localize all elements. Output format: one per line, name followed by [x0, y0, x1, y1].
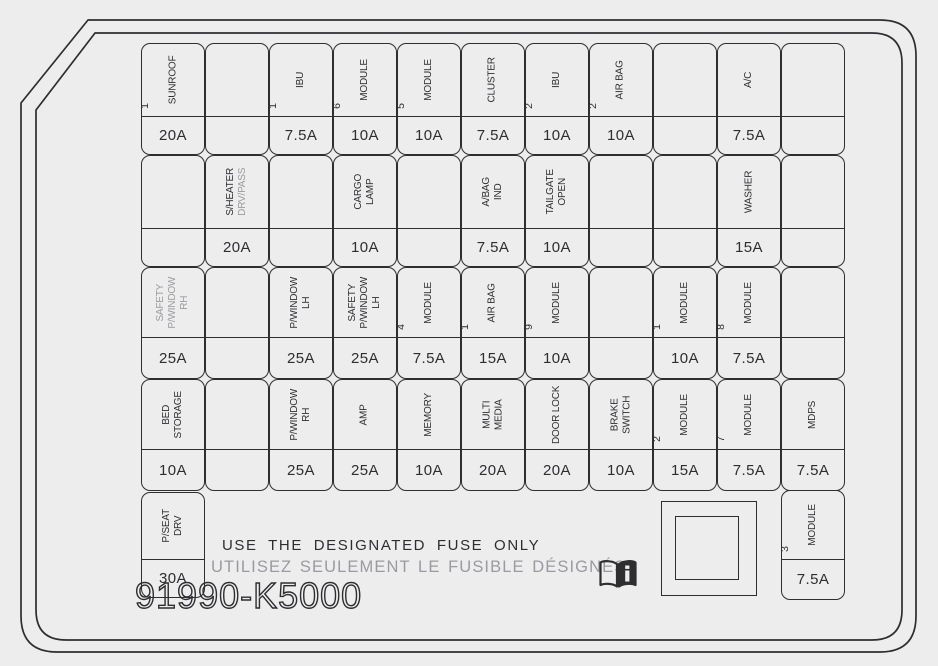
fuse-label: AIR BAG: [615, 60, 627, 99]
fuse-cell: 1SUNROOF20A: [141, 43, 205, 155]
fuse-label: MODULE: [359, 59, 371, 101]
fuse-label: P/WINDOW LH: [289, 277, 313, 329]
fuse-slot-empty: [205, 267, 269, 379]
fuse-amp-rating: 15A: [654, 449, 716, 490]
fuse-cell: 2MODULE15A: [653, 379, 717, 491]
fuse-label: MODULE: [423, 282, 435, 324]
fuse-label-area: 8MODULE: [718, 268, 780, 337]
fuse-label-area: [206, 44, 268, 116]
fuse-number: 4: [395, 324, 407, 330]
fuse-label: IBU: [551, 72, 563, 88]
fuse-amp-rating: 7.5A: [718, 337, 780, 378]
fuse-slot-empty: [589, 155, 653, 267]
fuse-label: MODULE: [679, 282, 691, 324]
fuse-label-area: [142, 156, 204, 228]
fuse-number: 7: [715, 436, 727, 442]
fuse-label: AIR BAG: [487, 283, 499, 322]
fuse-label-area: WASHER: [718, 156, 780, 228]
fuse-label-area: [590, 268, 652, 337]
fuse-label: CARGO LAMP: [353, 174, 377, 210]
fuse-number: 2: [651, 436, 663, 442]
fuse-amp-rating: 15A: [718, 228, 780, 266]
fuse-slot-empty: [141, 155, 205, 267]
fuse-cell: 1MODULE10A: [653, 267, 717, 379]
fuse-label-area: [206, 268, 268, 337]
fuse-label-area: 7MODULE: [718, 380, 780, 449]
fuse-label-area: P/SEAT DRV: [142, 493, 204, 559]
fuse-label: MODULE: [807, 504, 819, 546]
fuse-number: 2: [523, 103, 535, 109]
fuse-cell: 7MODULE7.5A: [717, 379, 781, 491]
fuse-amp-rating: 25A: [142, 337, 204, 378]
fuse-cell: 6MODULE10A: [333, 43, 397, 155]
fuse-label: MDPS: [807, 400, 819, 428]
fuse-label: MODULE: [743, 394, 755, 436]
fuse-amp-rating: 25A: [334, 337, 396, 378]
fuse-slot-empty: [589, 267, 653, 379]
fuse-label-area: 2IBU: [526, 44, 588, 116]
fuse-amp-rating: [206, 116, 268, 154]
fuse-amp-rating: 20A: [462, 449, 524, 490]
fuse-number: 3: [779, 546, 791, 552]
fuse-label: SAFETY P/WINDOW RH: [155, 277, 190, 329]
fuse-label: A/BAG IND: [481, 177, 505, 207]
fuse-slot-empty: [781, 267, 845, 379]
fuse-label-area: 1MODULE: [654, 268, 716, 337]
relay-box: [661, 501, 757, 596]
fuse-number: 2: [587, 103, 599, 109]
fuse-cell: 1AIR BAG15A: [461, 267, 525, 379]
fuse-amp-rating: 10A: [334, 116, 396, 154]
fuse-label: AMP: [359, 404, 371, 425]
fuse-label: P/SEAT DRV: [161, 509, 185, 543]
fuse-cell: SAFETY P/WINDOW RH25A: [141, 267, 205, 379]
fuse-cell: CARGO LAMP10A: [333, 155, 397, 267]
fuse-cell: MDPS7.5A: [781, 379, 845, 491]
fuse-cell: 2IBU10A: [525, 43, 589, 155]
fuse-label-area: DOOR LOCK: [526, 380, 588, 449]
fuse-amp-rating: 20A: [142, 116, 204, 154]
fuse-amp-rating: 7.5A: [270, 116, 332, 154]
fuse-slot-empty: [653, 155, 717, 267]
fuse-cell: P/WINDOW RH25A: [269, 379, 333, 491]
fuse-cell: A/C7.5A: [717, 43, 781, 155]
fuse-amp-rating: 7.5A: [462, 228, 524, 266]
fuse-amp-rating: [206, 337, 268, 378]
fuse-label: SAFETY P/WINDOW LH: [347, 277, 382, 329]
fuse-label-area: 3MODULE: [782, 491, 844, 559]
fuse-cell: BED STORAGE10A: [141, 379, 205, 491]
fuse-label-area: CARGO LAMP: [334, 156, 396, 228]
fuse-slot-empty: [205, 43, 269, 155]
fuse-slot-empty: [205, 379, 269, 491]
fuse-slot-empty: [397, 155, 461, 267]
fuse-number: 1: [651, 324, 663, 330]
fuse-amp-rating: 10A: [526, 337, 588, 378]
fuse-amp-rating: [590, 337, 652, 378]
fuse-label-area: SAFETY P/WINDOW RH: [142, 268, 204, 337]
fuse-cell: DOOR LOCK20A: [525, 379, 589, 491]
fuse-amp-rating: 7.5A: [718, 116, 780, 154]
fuse-amp-rating: 7.5A: [782, 449, 844, 490]
fuse-cell: P/WINDOW LH25A: [269, 267, 333, 379]
fuse-cell: A/BAG IND7.5A: [461, 155, 525, 267]
fuse-label-area: 1IBU: [270, 44, 332, 116]
fuse-cell: WASHER15A: [717, 155, 781, 267]
fuse-label-area: 6MODULE: [334, 44, 396, 116]
fuse-cell: BRAKE SWITCH10A: [589, 379, 653, 491]
fuse-label-area: 9MODULE: [526, 268, 588, 337]
fuse-label: MEMORY: [423, 393, 435, 437]
fuse-label-area: 1SUNROOF: [142, 44, 204, 116]
fuse-box-panel: 1SUNROOF20A1IBU7.5A6MODULE10A5MODULE10AC…: [0, 0, 938, 666]
fuse-amp-rating: 10A: [590, 449, 652, 490]
fuse-cell: 2AIR BAG10A: [589, 43, 653, 155]
fuse-amp-rating: 7.5A: [462, 116, 524, 154]
fuse-label-area: A/C: [718, 44, 780, 116]
fuse-amp-rating: [782, 228, 844, 266]
fuse-label: S/HEATER: [225, 168, 237, 216]
fuse-label: MULTI MEDIA: [481, 399, 505, 430]
fuse-label: MODULE: [551, 282, 563, 324]
fuse-cell: MEMORY10A: [397, 379, 461, 491]
fuse-amp-rating: 20A: [526, 449, 588, 490]
fuse-amp-rating: [590, 228, 652, 266]
fuse-amp-rating: 10A: [526, 228, 588, 266]
fuse-amp-rating: 25A: [270, 449, 332, 490]
fuse-amp-rating: 25A: [270, 337, 332, 378]
fuse-number: 5: [395, 103, 407, 109]
fuse-number: 1: [267, 103, 279, 109]
fuse-note-english: USE THE DESIGNATED FUSE ONLY: [222, 537, 540, 554]
fuse-number: 8: [715, 324, 727, 330]
fuse-cell: CLUSTER7.5A: [461, 43, 525, 155]
fuse-label-area: P/WINDOW RH: [270, 380, 332, 449]
fuse-label-area: 4MODULE: [398, 268, 460, 337]
fuse-cell: S/HEATERDRV/PASS20A: [205, 155, 269, 267]
fuse-label: TAILGATE OPEN: [545, 169, 569, 214]
fuse-label-area: BED STORAGE: [142, 380, 204, 449]
fuse-amp-rating: [270, 228, 332, 266]
fuse-label: P/WINDOW RH: [289, 389, 313, 441]
fuse-amp-rating: 10A: [590, 116, 652, 154]
fuse-amp-rating: [398, 228, 460, 266]
fuse-label-area: [654, 156, 716, 228]
fuse-amp-rating: 10A: [526, 116, 588, 154]
fuse-label: IBU: [295, 72, 307, 88]
fuse-amp-rating: 7.5A: [718, 449, 780, 490]
fuse-label-area: [782, 44, 844, 116]
fuse-cell: 3MODULE7.5A: [781, 490, 845, 600]
fuse-cell: SAFETY P/WINDOW LH25A: [333, 267, 397, 379]
fuse-cell: MULTI MEDIA20A: [461, 379, 525, 491]
fuse-amp-rating: 10A: [334, 228, 396, 266]
fuse-amp-rating: 15A: [462, 337, 524, 378]
fuse-label: SUNROOF: [167, 56, 179, 105]
fuse-label-area: MULTI MEDIA: [462, 380, 524, 449]
fuse-amp-rating: [782, 116, 844, 154]
fuse-amp-rating: 7.5A: [398, 337, 460, 378]
fuse-label: WASHER: [743, 171, 755, 213]
fuse-amp-rating: 20A: [206, 228, 268, 266]
fuse-cell: 8MODULE7.5A: [717, 267, 781, 379]
fuse-label-area: [270, 156, 332, 228]
fuse-amp-rating: 25A: [334, 449, 396, 490]
fuse-cell: TAILGATE OPEN10A: [525, 155, 589, 267]
fuse-label: A/C: [743, 72, 755, 88]
relay-box-inner: [675, 516, 739, 580]
fuse-label-area: A/BAG IND: [462, 156, 524, 228]
fuse-amp-rating: 10A: [398, 116, 460, 154]
fuse-label-area: [590, 156, 652, 228]
part-number: 91990-K5000: [131, 572, 391, 622]
fuse-label-area: MEMORY: [398, 380, 460, 449]
fuse-cell: 5MODULE10A: [397, 43, 461, 155]
fuse-cell: AMP25A: [333, 379, 397, 491]
fuse-amp-rating: 10A: [142, 449, 204, 490]
fuse-cell: 4MODULE7.5A: [397, 267, 461, 379]
fuse-cell: 1IBU7.5A: [269, 43, 333, 155]
fuse-amp-rating: [654, 116, 716, 154]
fuse-label-area: 1AIR BAG: [462, 268, 524, 337]
fuse-amp-rating: [654, 228, 716, 266]
fuse-label: CLUSTER: [487, 57, 499, 102]
fuse-label-area: P/WINDOW LH: [270, 268, 332, 337]
fuse-slot-empty: [269, 155, 333, 267]
fuse-label: BED STORAGE: [161, 391, 185, 438]
fuse-amp-rating: [142, 228, 204, 266]
fuse-label-area: S/HEATERDRV/PASS: [206, 156, 268, 228]
svg-text:91990-K5000: 91990-K5000: [135, 575, 362, 616]
fuse-slot-empty: [781, 155, 845, 267]
fuse-label-area: [206, 380, 268, 449]
fuse-amp-rating: 10A: [654, 337, 716, 378]
fuse-amp-rating: 7.5A: [782, 559, 844, 599]
fuse-label: BRAKE SWITCH: [609, 395, 633, 433]
fuse-label-area: MDPS: [782, 380, 844, 449]
fuse-label-area: 5MODULE: [398, 44, 460, 116]
fuse-label-area: SAFETY P/WINDOW LH: [334, 268, 396, 337]
fuse-cell: 9MODULE10A: [525, 267, 589, 379]
fuse-label: MODULE: [423, 59, 435, 101]
fuse-slot-empty: [653, 43, 717, 155]
manual-book-icon: [597, 559, 639, 590]
fuse-amp-rating: [206, 449, 268, 490]
fuse-label: MODULE: [679, 394, 691, 436]
fuse-label-secondary: DRV/PASS: [237, 168, 249, 216]
fuse-number: 6: [331, 103, 343, 109]
fuse-label-area: 2AIR BAG: [590, 44, 652, 116]
fuse-label: MODULE: [743, 282, 755, 324]
fuse-label-area: AMP: [334, 380, 396, 449]
fuse-label-area: [782, 156, 844, 228]
fuse-number: 9: [523, 324, 535, 330]
fuse-label-area: BRAKE SWITCH: [590, 380, 652, 449]
fuse-amp-rating: [782, 337, 844, 378]
fuse-label-area: [654, 44, 716, 116]
fuse-number: 1: [139, 103, 151, 109]
fuse-slot-empty: [781, 43, 845, 155]
fuse-amp-rating: 10A: [398, 449, 460, 490]
fuse-label-area: [782, 268, 844, 337]
fuse-label-area: 2MODULE: [654, 380, 716, 449]
fuse-label-area: [398, 156, 460, 228]
fuse-label-area: CLUSTER: [462, 44, 524, 116]
fuse-label: DOOR LOCK: [551, 385, 563, 443]
fuse-number: 1: [459, 324, 471, 330]
fuse-label-area: TAILGATE OPEN: [526, 156, 588, 228]
